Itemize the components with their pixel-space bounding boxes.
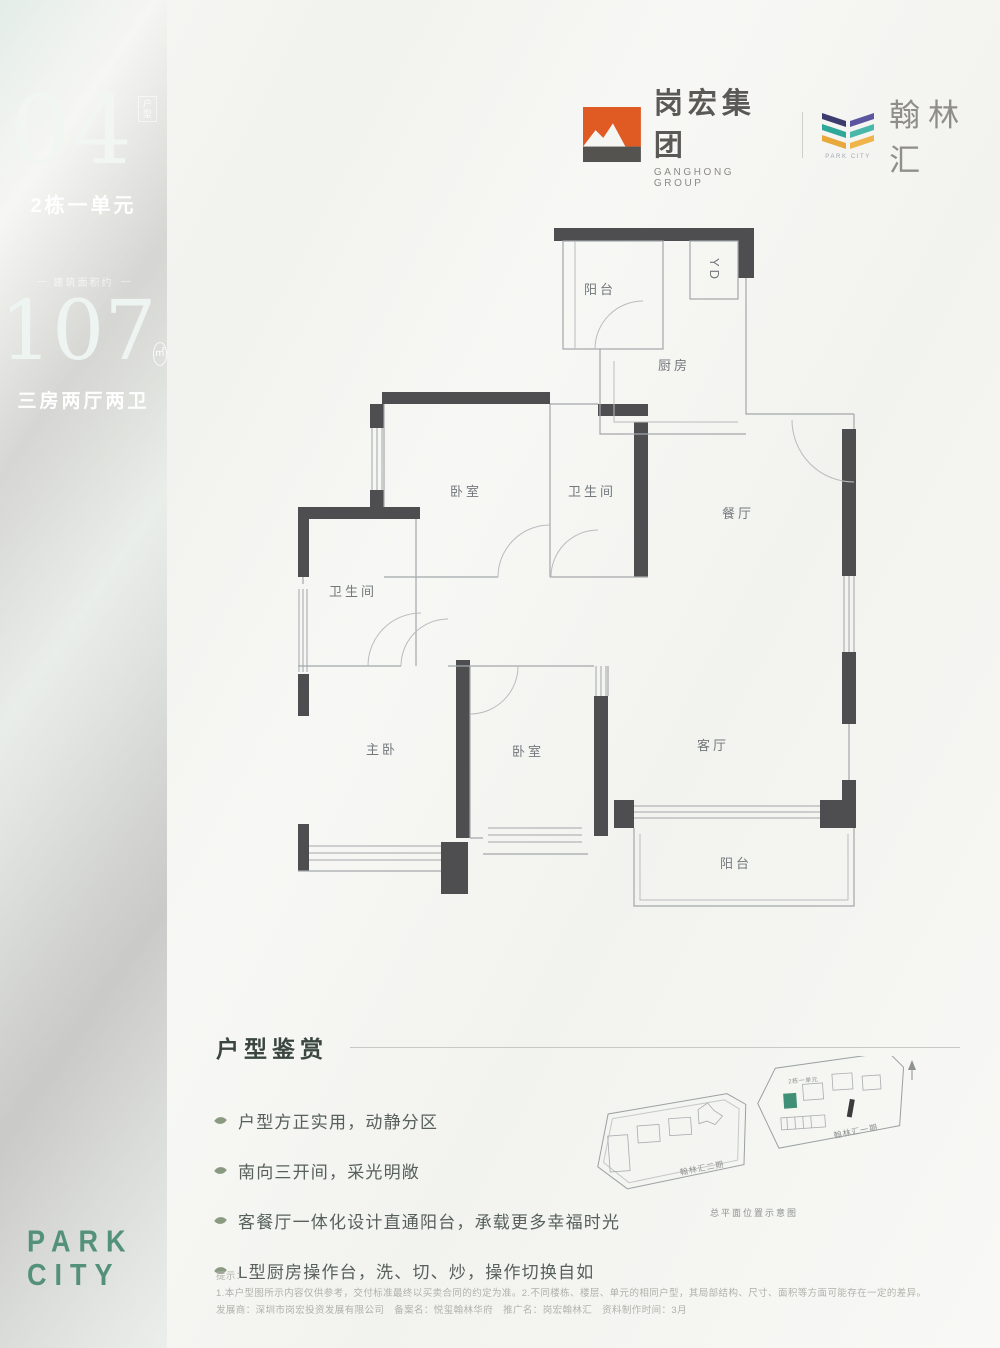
room-label-living: 客厅	[697, 738, 729, 753]
hanlinhui-name: 翰林汇	[889, 90, 1000, 180]
phase2-plot: 翰林汇二期	[593, 1092, 751, 1190]
area-value: 107	[0, 291, 157, 373]
room-label-bedroom-3: 卧室	[512, 744, 544, 759]
room-label-master-bedroom: 主卧	[366, 742, 398, 757]
leaf-icon	[214, 1114, 227, 1127]
floorplan-poster: 04 户型 2栋一单元 建筑面积约 107 ㎡ 三房两厅两卫 PARK CITY	[0, 0, 1000, 1348]
area-unit-badge: ㎡	[153, 342, 167, 366]
room-label-balcony-top: 阳台	[584, 282, 616, 297]
disclaimer: 提示： 1.本户型图所示内容仅供参考，交付标准最终以买卖合同的约定为准。2.不同…	[216, 1268, 958, 1319]
ganghong-mountain-icon	[583, 106, 641, 164]
floor-plan: 阳台 YD 厨房 餐厅 卧室 卫生间 卫生间 主卧 卧室 客厅 阳台	[298, 224, 878, 934]
hanlinhui-logo: PARK CITY 翰林汇	[820, 90, 1000, 180]
leaf-icon	[214, 1214, 227, 1227]
leaf-icon	[214, 1164, 227, 1177]
room-label-balcony-bottom: 阳台	[720, 856, 752, 871]
unit-number: 04	[10, 84, 133, 179]
open-book-icon	[820, 110, 876, 152]
room-label-kitchen: 厨房	[658, 358, 690, 373]
area-block: 建筑面积约 107 ㎡ 三房两厅两卫	[0, 274, 167, 413]
feature-text: 户型方正实用，动静分区	[238, 1108, 438, 1133]
ganghong-name: 岗宏集团	[654, 80, 785, 164]
phase2-label: 翰林汇二期	[679, 1159, 725, 1177]
room-label-bedroom-2: 卧室	[450, 484, 482, 499]
feature-text: 客餐厅一体化设计直通阳台，承载更多幸福时光	[238, 1208, 620, 1233]
room-label-dining: 餐厅	[722, 506, 754, 521]
phase1-plot: 2栋一单元 翰林汇一期	[755, 1056, 909, 1149]
brand-line-2: CITY	[27, 1258, 134, 1292]
north-arrow-icon	[908, 1060, 916, 1080]
room-label-bath-1: 卫生间	[568, 484, 616, 499]
disclaimer-title: 提示：	[216, 1268, 958, 1285]
park-city-wordmark: PARK CITY	[27, 1224, 134, 1292]
features-title: 户型鉴赏	[216, 1030, 328, 1064]
site-plan: 翰林汇二期 2栋一单元 翰林汇一期 总平面位置示意图	[582, 1056, 927, 1231]
logo-divider	[802, 112, 803, 158]
sidebar: 04 户型 2栋一单元 建筑面积约 107 ㎡ 三房两厅两卫 PARK CITY	[0, 0, 167, 1348]
brand-line-1: PARK	[27, 1224, 134, 1258]
room-layout-label: 三房两厅两卫	[0, 386, 167, 413]
title-rule	[350, 1047, 960, 1048]
room-label-bath-2: 卫生间	[329, 584, 377, 599]
ganghong-logo: 岗宏集团 GANGHONG GROUP	[583, 80, 785, 189]
unit-block: 04 户型 2栋一单元	[0, 0, 167, 218]
room-label-yd: YD	[707, 258, 722, 282]
unit-type-tag: 户型	[138, 96, 157, 122]
siteplan-caption: 总平面位置示意图	[710, 1207, 798, 1218]
walls-dark	[298, 228, 856, 894]
unit-building-label: 2栋一单元	[0, 189, 167, 218]
disclaimer-line-2: 发展商：深圳市岗宏投资发展有限公司 备案名：悦玺翰林华府 推广名：岗宏翰林汇 资…	[216, 1302, 958, 1319]
door-arcs	[368, 301, 854, 714]
hanlinhui-name-en: PARK CITY	[825, 154, 871, 160]
feature-text: 南向三开间，采光明敞	[238, 1158, 420, 1183]
disclaimer-line-1: 1.本户型图所示内容仅供参考，交付标准最终以买卖合同的约定为准。2.不同楼栋、楼…	[216, 1285, 958, 1302]
logo-lockup: 岗宏集团 GANGHONG GROUP PARK CITY 翰林汇	[583, 80, 1000, 189]
highlight-building	[783, 1093, 797, 1109]
ganghong-name-en: GANGHONG GROUP	[654, 167, 785, 189]
phase1-label: 翰林汇一期	[833, 1122, 879, 1140]
